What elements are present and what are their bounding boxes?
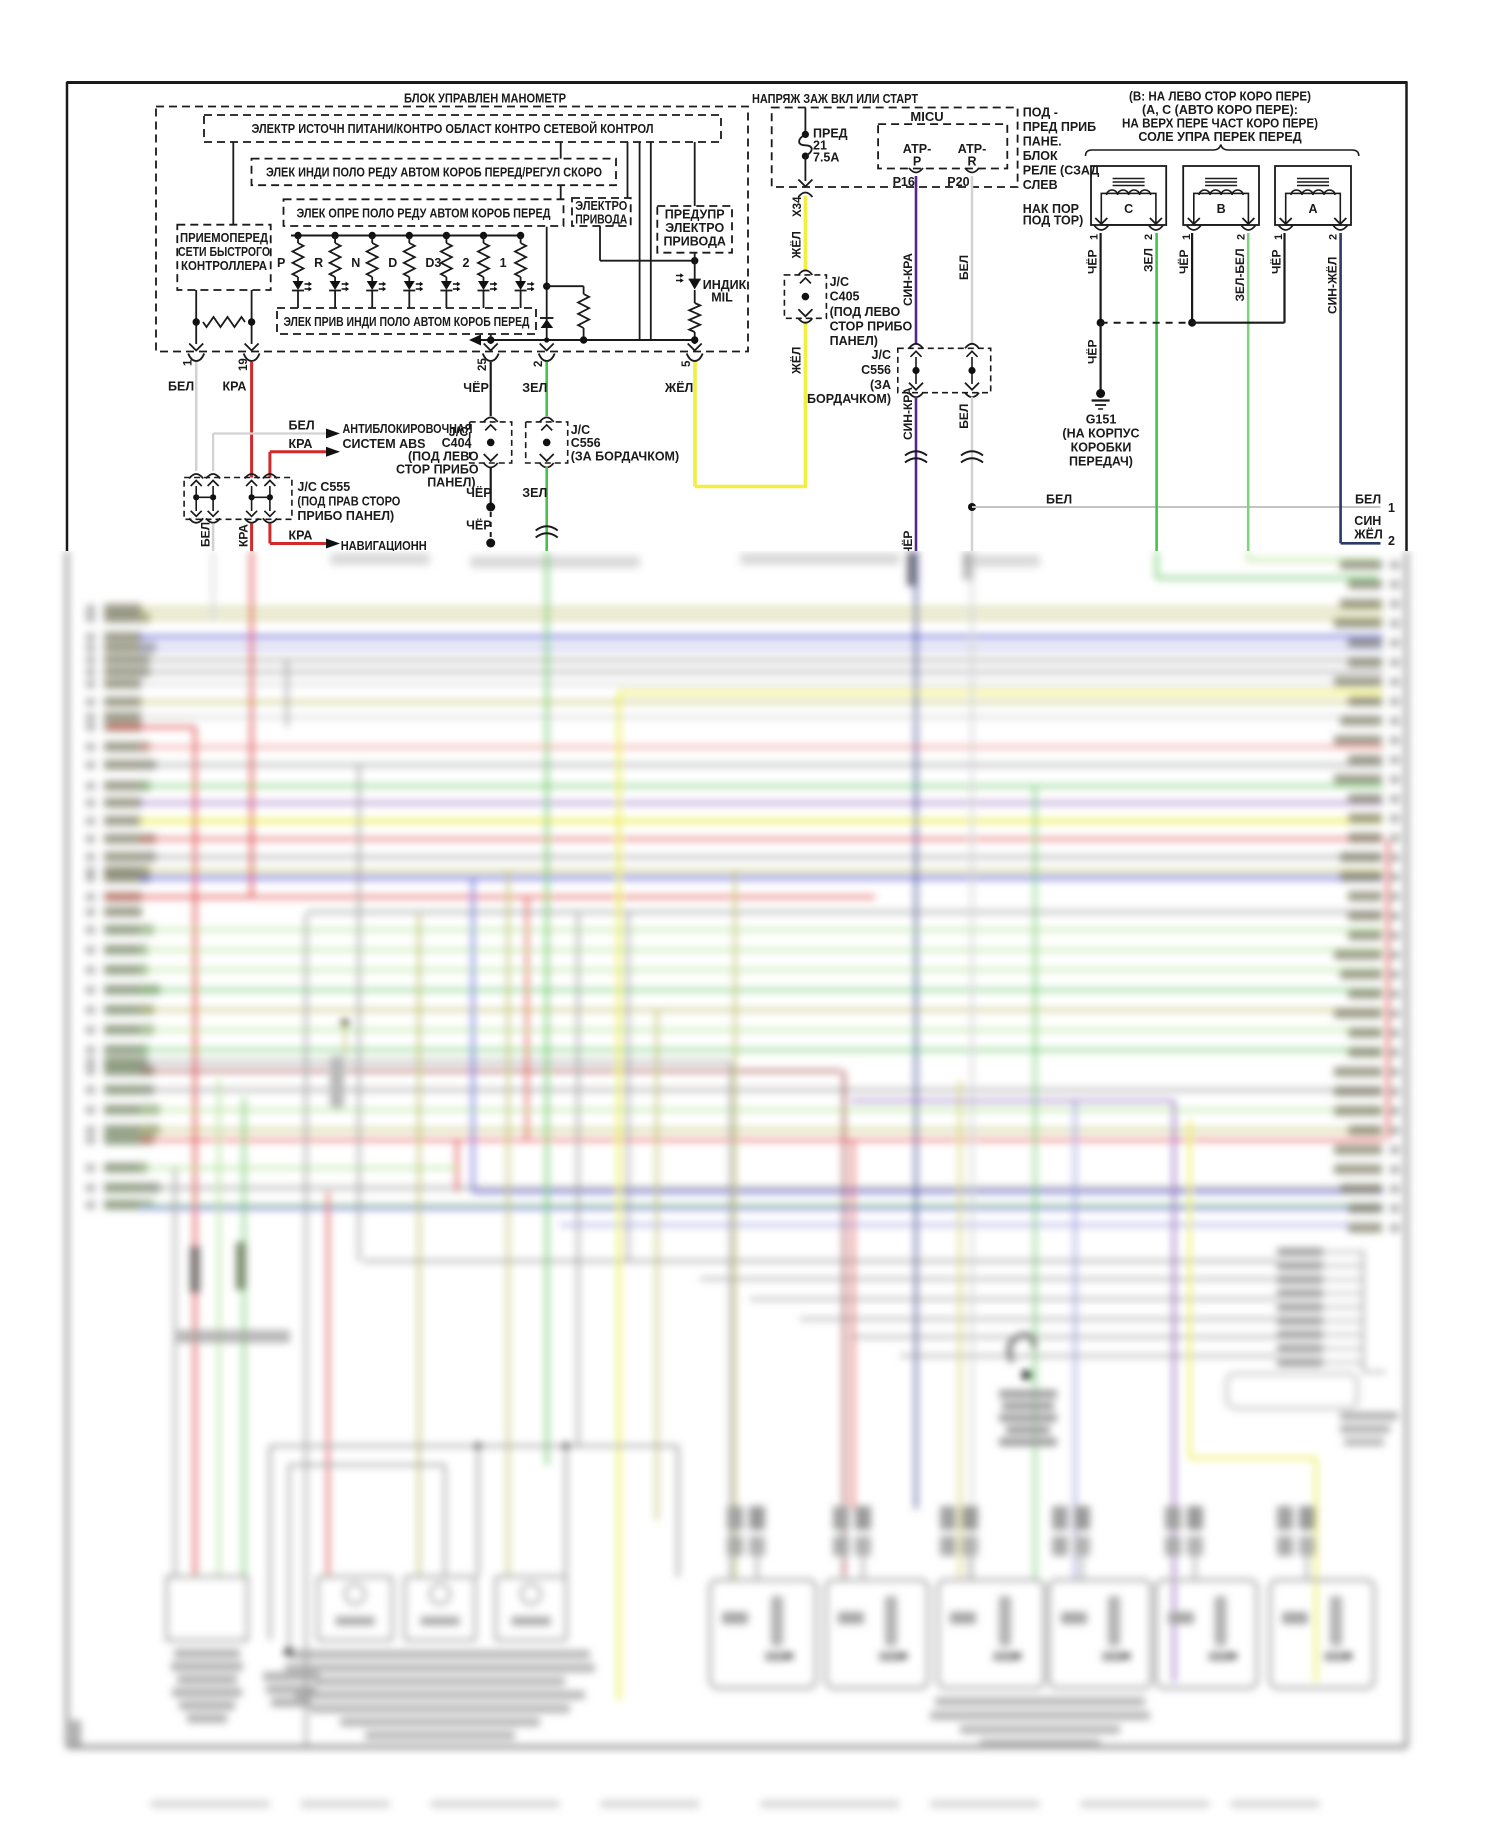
- svg-text:ЭЛЕКТРО: ЭЛЕКТРО: [665, 221, 724, 235]
- svg-text:D: D: [388, 256, 397, 270]
- svg-text:Р20: Р20: [947, 175, 969, 189]
- svg-text:(ПОД ЛЕВО: (ПОД ЛЕВО: [830, 305, 901, 319]
- svg-text:СИН-КРА: СИН-КРА: [901, 253, 915, 306]
- svg-text:J/C: J/C: [571, 423, 590, 437]
- svg-text:2: 2: [1328, 234, 1340, 240]
- svg-text:ЗЕЛ-БЕЛ: ЗЕЛ-БЕЛ: [1233, 249, 1247, 302]
- svg-text:25: 25: [477, 358, 489, 371]
- svg-text:C556: C556: [861, 363, 891, 377]
- svg-text:ЖЁЛ: ЖЁЛ: [664, 380, 693, 395]
- svg-text:J/C C555: J/C C555: [297, 480, 350, 494]
- svg-text:БЕЛ: БЕЛ: [1046, 493, 1072, 507]
- svg-text:MIL: MIL: [711, 291, 733, 305]
- svg-text:R: R: [967, 155, 976, 169]
- svg-text:НА ВЕРХ ПЕРЕ ЧАСТ КОРО ПЕРЕ): НА ВЕРХ ПЕРЕ ЧАСТ КОРО ПЕРЕ): [1122, 117, 1318, 131]
- svg-text:D3: D3: [425, 256, 441, 270]
- svg-text:ЗЕЛ: ЗЕЛ: [522, 486, 547, 500]
- svg-text:ЖЁЛ: ЖЁЛ: [1353, 527, 1382, 542]
- svg-text:КРА: КРА: [223, 380, 247, 394]
- svg-text:G151: G151: [1086, 413, 1117, 427]
- svg-text:БЕЛ: БЕЛ: [957, 404, 971, 429]
- svg-text:Р: Р: [913, 155, 921, 169]
- svg-text:ПРИВОДА: ПРИВОДА: [575, 213, 627, 227]
- svg-text:БОРДАЧКОМ): БОРДАЧКОМ): [807, 392, 891, 406]
- svg-text:ЧЁР: ЧЁР: [1085, 250, 1100, 274]
- svg-text:ЭЛЕК ИНДИ ПОЛО РЕДУ АВТОМ КОРО: ЭЛЕК ИНДИ ПОЛО РЕДУ АВТОМ КОРОБ ПЕРЕД/РЕ…: [266, 165, 602, 180]
- svg-text:1: 1: [183, 359, 195, 366]
- svg-text:ЭЛЕК ОПРЕ ПОЛО РЕДУ АВТОМ КОРО: ЭЛЕК ОПРЕ ПОЛО РЕДУ АВТОМ КОРОБ ПЕРЕД: [297, 206, 552, 221]
- svg-text:ПРЕД ПРИБ: ПРЕД ПРИБ: [1023, 120, 1096, 134]
- svg-text:C556: C556: [571, 436, 601, 450]
- svg-text:ЧЁР: ЧЁР: [1176, 250, 1191, 274]
- svg-text:ЖЁЛ: ЖЁЛ: [789, 231, 804, 259]
- svg-text:2: 2: [533, 361, 545, 367]
- svg-text:N: N: [351, 256, 360, 270]
- svg-text:ПАНЕЛ): ПАНЕЛ): [830, 334, 878, 348]
- svg-text:(НА КОРПУС: (НА КОРПУС: [1062, 427, 1139, 441]
- svg-text:БЕЛ: БЕЛ: [957, 255, 971, 280]
- svg-text:7.5А: 7.5А: [813, 151, 839, 165]
- svg-text:C404: C404: [442, 436, 472, 450]
- svg-text:ЧЁР: ЧЁР: [466, 518, 491, 533]
- svg-text:СТОР ПРИБО: СТОР ПРИБО: [396, 463, 479, 477]
- svg-text:ПРИЕМОПЕРЕД: ПРИЕМОПЕРЕД: [180, 231, 268, 245]
- svg-text:1: 1: [500, 256, 507, 270]
- svg-text:СЛЕВ: СЛЕВ: [1023, 178, 1058, 192]
- svg-text:5: 5: [681, 360, 693, 367]
- svg-text:C405: C405: [830, 290, 860, 304]
- svg-text:(ПОД ПРАВ СТОРО: (ПОД ПРАВ СТОРО: [297, 495, 400, 509]
- svg-text:(ЗА: (ЗА: [870, 378, 891, 392]
- svg-text:1: 1: [1388, 501, 1395, 515]
- svg-text:MICU: MICU: [910, 109, 943, 124]
- svg-text:2: 2: [1236, 234, 1248, 240]
- svg-text:2: 2: [1388, 534, 1395, 548]
- svg-text:ПРИВОДА: ПРИВОДА: [663, 235, 726, 249]
- svg-text:КРА: КРА: [289, 529, 313, 543]
- svg-text:СЕТИ БЫСТРОГО: СЕТИ БЫСТРОГО: [178, 245, 270, 259]
- svg-text:ПАНЕ.: ПАНЕ.: [1023, 135, 1062, 149]
- svg-text:БЕЛ: БЕЛ: [199, 522, 213, 547]
- svg-text:СИН-КРА: СИН-КРА: [901, 387, 915, 440]
- svg-text:J/C: J/C: [830, 275, 849, 289]
- svg-text:2: 2: [463, 256, 470, 270]
- svg-text:ЧЁР: ЧЁР: [1085, 340, 1100, 364]
- svg-text:(А, С (АВТО КОРО ПЕРЕ):: (А, С (АВТО КОРО ПЕРЕ):: [1142, 103, 1298, 117]
- svg-text:БЛОК: БЛОК: [1023, 149, 1058, 163]
- svg-text:ПРЕДУПР: ПРЕДУПР: [665, 208, 725, 222]
- svg-text:R: R: [314, 256, 323, 270]
- svg-text:1: 1: [1089, 234, 1101, 240]
- svg-text:ЗЕЛ: ЗЕЛ: [522, 381, 547, 395]
- svg-text:А: А: [1308, 202, 1317, 216]
- svg-text:ПОД -: ПОД -: [1023, 106, 1058, 120]
- svg-text:1: 1: [1273, 234, 1285, 240]
- svg-text:J/C: J/C: [872, 348, 891, 362]
- svg-text:СТОР ПРИБО: СТОР ПРИБО: [830, 320, 913, 334]
- svg-text:СОЛЕ УПРА ПЕРЕК ПЕРЕД: СОЛЕ УПРА ПЕРЕК ПЕРЕД: [1138, 130, 1301, 144]
- svg-text:ЧЁР: ЧЁР: [466, 485, 491, 500]
- svg-text:КОНТРОЛЛЕРА: КОНТРОЛЛЕРА: [181, 259, 267, 273]
- svg-text:БЕЛ: БЕЛ: [289, 419, 315, 433]
- svg-text:ЭЛЕКТРО: ЭЛЕКТРО: [575, 199, 627, 213]
- svg-text:БЕЛ: БЕЛ: [168, 380, 194, 394]
- svg-text:СИН: СИН: [1354, 514, 1381, 528]
- svg-text:ЧЁР: ЧЁР: [463, 380, 488, 395]
- svg-text:ЭЛЕКТР ИСТОЧН ПИТАНИ/КОНТРО ОБ: ЭЛЕКТР ИСТОЧН ПИТАНИ/КОНТРО ОБЛАСТ КОНТР…: [252, 121, 654, 136]
- svg-text:РЕЛЕ (СЗАД: РЕЛЕ (СЗАД: [1023, 164, 1100, 178]
- svg-text:СИН-ЖЁЛ: СИН-ЖЁЛ: [1325, 257, 1340, 314]
- svg-text:БЕЛ: БЕЛ: [1355, 493, 1381, 507]
- svg-text:В: В: [1217, 202, 1226, 216]
- svg-text:БЛОК УПРАВЛЕН МАНОМЕТР: БЛОК УПРАВЛЕН МАНОМЕТР: [404, 91, 566, 106]
- svg-text:КРА: КРА: [237, 524, 251, 547]
- svg-text:(ПОД ЛЕВО: (ПОД ЛЕВО: [408, 450, 479, 464]
- svg-text:Р16: Р16: [893, 175, 915, 189]
- svg-text:КОРОБКИ: КОРОБКИ: [1071, 441, 1132, 455]
- svg-text:ЭЛЕК ПРИВ ИНДИ ПОЛО АВТОМ КОРО: ЭЛЕК ПРИВ ИНДИ ПОЛО АВТОМ КОРОБ ПЕРЕД: [284, 314, 531, 329]
- svg-text:(ЗА БОРДАЧКОМ): (ЗА БОРДАЧКОМ): [571, 450, 679, 464]
- svg-text:КРА: КРА: [289, 437, 313, 451]
- svg-text:ЧЁР: ЧЁР: [1269, 250, 1284, 274]
- svg-text:19: 19: [238, 358, 250, 371]
- svg-text:ЗЕЛ: ЗЕЛ: [1142, 248, 1156, 272]
- svg-text:ПРИБО ПАНЕЛ): ПРИБО ПАНЕЛ): [297, 509, 394, 523]
- svg-text:С: С: [1124, 202, 1133, 216]
- svg-text:НАВИГАЦИОНН: НАВИГАЦИОНН: [341, 539, 427, 553]
- svg-text:ПОД ТОР): ПОД ТОР): [1023, 214, 1083, 228]
- svg-text:ПЕРЕДАЧ): ПЕРЕДАЧ): [1069, 455, 1133, 469]
- svg-text:P: P: [277, 256, 285, 270]
- svg-text:ЖЁЛ: ЖЁЛ: [789, 347, 804, 375]
- svg-text:(В: НА ЛЕВО СТОР КОРО ПЕРЕ): (В: НА ЛЕВО СТОР КОРО ПЕРЕ): [1129, 90, 1311, 104]
- svg-text:НАПРЯЖ ЗАЖ ВКЛ ИЛИ СТАРТ: НАПРЯЖ ЗАЖ ВКЛ ИЛИ СТАРТ: [752, 91, 918, 106]
- svg-text:2: 2: [1143, 234, 1155, 240]
- svg-text:Х34: Х34: [792, 196, 804, 217]
